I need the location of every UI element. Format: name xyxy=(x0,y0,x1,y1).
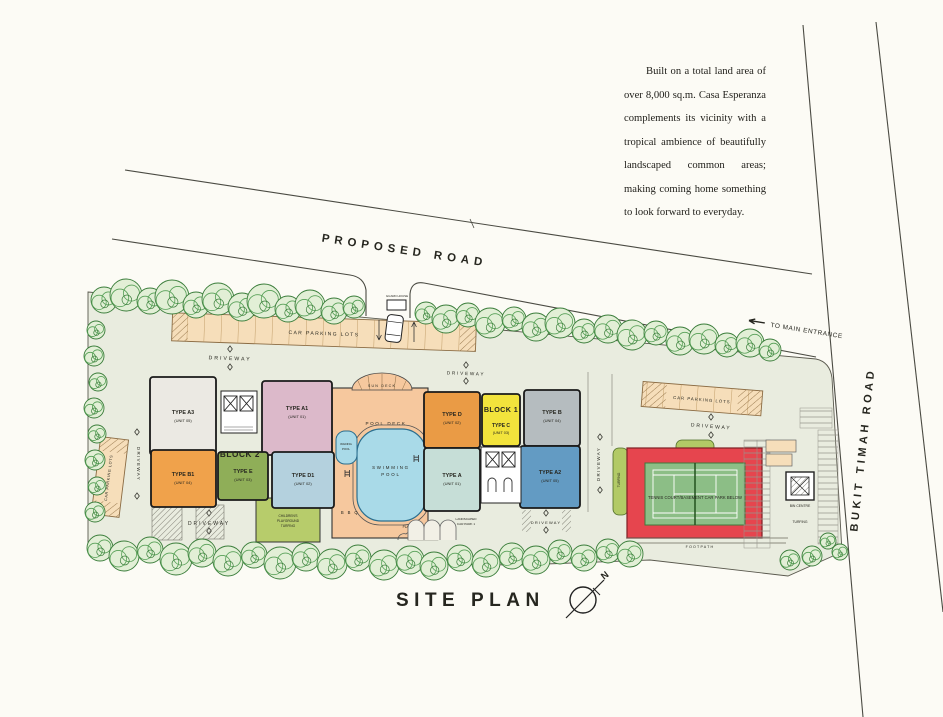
svg-text:(UNIT 03): (UNIT 03) xyxy=(234,477,252,482)
svg-text:BLOCK 1: BLOCK 1 xyxy=(484,405,518,414)
unit-type-a3 xyxy=(150,377,216,455)
svg-text:SUN DECK: SUN DECK xyxy=(368,384,396,388)
tree xyxy=(292,543,320,571)
unit-type-b1 xyxy=(151,450,216,507)
svg-text:(UNIT 05): (UNIT 05) xyxy=(174,418,192,423)
lift-icon xyxy=(224,396,237,411)
svg-text:POOL: POOL xyxy=(342,447,350,451)
tree xyxy=(88,425,106,443)
tree xyxy=(264,547,296,579)
tree xyxy=(832,544,848,560)
tree xyxy=(343,296,365,318)
tree xyxy=(475,308,505,338)
tree xyxy=(644,321,668,345)
svg-text:POOL: POOL xyxy=(381,472,400,477)
tree xyxy=(85,502,105,522)
tree xyxy=(571,545,597,571)
tree xyxy=(85,450,105,470)
svg-text:TYPE B1: TYPE B1 xyxy=(172,472,194,478)
tree xyxy=(295,290,325,320)
tree xyxy=(596,539,620,563)
tree xyxy=(369,550,399,580)
tree xyxy=(84,398,104,418)
svg-text:DRIVEWAY: DRIVEWAY xyxy=(136,447,141,481)
svg-text:CAR PARK 1: CAR PARK 1 xyxy=(457,522,475,526)
tree xyxy=(89,373,107,391)
svg-text:TYPE B: TYPE B xyxy=(542,410,562,416)
site-plan-drawing: PROPOSED ROAD BOUNDARY LINE TO MAIN ENTR… xyxy=(0,0,943,717)
svg-text:WADING: WADING xyxy=(340,442,353,446)
svg-text:SWIMMING: SWIMMING xyxy=(372,465,410,470)
svg-text:LANDSCAPED: LANDSCAPED xyxy=(456,517,478,521)
unit-type-d1 xyxy=(272,452,334,508)
proposed-road-label: PROPOSED ROAD xyxy=(321,233,488,270)
unit-type-c xyxy=(482,394,520,446)
tree xyxy=(522,546,550,574)
unit-type-e xyxy=(218,452,268,500)
tree xyxy=(759,339,781,361)
tree xyxy=(499,543,525,569)
tree xyxy=(617,320,647,350)
tree xyxy=(160,543,192,575)
bukit-timah-road-label: BUKIT TIMAH ROAD xyxy=(848,367,877,532)
svg-text:PLAYGROUND: PLAYGROUND xyxy=(277,519,300,523)
tree xyxy=(84,346,104,366)
pool-deck: SUN DECK POOL DECK SWIMMING POOL WADING … xyxy=(332,373,438,540)
guard-house-label: GUARD HOUSE xyxy=(386,294,408,298)
tree xyxy=(572,319,596,343)
svg-text:(UNIT 04): (UNIT 04) xyxy=(174,480,192,485)
tree xyxy=(396,546,424,574)
svg-text:TURFING: TURFING xyxy=(617,472,621,487)
tree xyxy=(88,477,106,495)
svg-text:TYPE C: TYPE C xyxy=(492,423,510,429)
svg-text:BLOCK 2: BLOCK 2 xyxy=(220,450,260,459)
svg-text:(UNIT 05): (UNIT 05) xyxy=(541,478,559,483)
tree xyxy=(432,305,460,333)
tree xyxy=(617,541,643,567)
svg-text:(UNIT 02): (UNIT 02) xyxy=(443,420,461,425)
svg-text:(UNIT 02): (UNIT 02) xyxy=(294,481,312,486)
svg-text:TYPE D1: TYPE D1 xyxy=(292,473,314,479)
svg-text:TYPE A1: TYPE A1 xyxy=(286,406,308,412)
tree xyxy=(317,549,347,579)
svg-text:B B Q: B B Q xyxy=(341,510,359,515)
svg-text:TENNIS COURT/BASEMENT CAR PARK: TENNIS COURT/BASEMENT CAR PARK BELOW xyxy=(648,495,742,500)
tree xyxy=(689,324,719,354)
site-plan-page: Built on a total land area of over 8,000… xyxy=(0,0,943,717)
guard-house xyxy=(387,300,406,310)
tree xyxy=(802,546,822,566)
north-arrow: N xyxy=(566,569,611,618)
unit-type-a xyxy=(424,448,480,511)
svg-text:(UNIT 01): (UNIT 01) xyxy=(443,481,461,486)
svg-text:TO MAIN ENTRANCE: TO MAIN ENTRANCE xyxy=(770,322,843,340)
svg-text:FOOTPATH: FOOTPATH xyxy=(686,545,715,549)
svg-text:TYPE E: TYPE E xyxy=(233,469,253,475)
svg-text:DRIVEWAY: DRIVEWAY xyxy=(596,447,601,481)
tree xyxy=(110,279,142,311)
tree xyxy=(321,298,347,324)
vestibule-hatch xyxy=(196,505,224,539)
svg-text:(UNIT 03): (UNIT 03) xyxy=(493,431,510,435)
tree xyxy=(241,542,267,568)
svg-text:TURFING: TURFING xyxy=(281,524,296,528)
page-title: SITE PLAN xyxy=(396,590,545,611)
tree xyxy=(715,333,739,357)
tree xyxy=(420,552,448,580)
svg-text:CHILDREN'S: CHILDREN'S xyxy=(278,514,297,518)
svg-text:TYPE A2: TYPE A2 xyxy=(539,470,561,476)
tree xyxy=(345,545,371,571)
lift-icon xyxy=(240,396,253,411)
tree xyxy=(137,537,163,563)
lift-icon xyxy=(502,452,515,467)
tree xyxy=(447,545,473,571)
svg-text:TYPE A3: TYPE A3 xyxy=(172,410,194,416)
tree xyxy=(87,321,105,339)
svg-text:DRIVEWAY: DRIVEWAY xyxy=(531,520,562,525)
tree xyxy=(548,540,572,564)
svg-text:TYPE D: TYPE D xyxy=(442,412,462,418)
tree xyxy=(472,549,500,577)
svg-text:TURFING: TURFING xyxy=(792,520,807,524)
block-1-core xyxy=(481,447,521,503)
tree xyxy=(188,539,216,567)
tree xyxy=(780,550,800,570)
tree xyxy=(545,308,575,338)
svg-text:(UNIT 04): (UNIT 04) xyxy=(543,418,561,423)
svg-text:BIN CENTRE: BIN CENTRE xyxy=(790,504,811,508)
tree xyxy=(213,546,243,576)
left-arrow-icon xyxy=(749,318,766,325)
unit-type-a2 xyxy=(520,446,580,508)
north-label: N xyxy=(599,569,611,582)
tree xyxy=(109,541,139,571)
block-2-core xyxy=(221,391,257,433)
car-icon xyxy=(385,314,404,343)
svg-text:(UNIT 01): (UNIT 01) xyxy=(288,414,306,419)
lift-icon xyxy=(486,452,499,467)
svg-text:TYPE A: TYPE A xyxy=(442,473,461,479)
